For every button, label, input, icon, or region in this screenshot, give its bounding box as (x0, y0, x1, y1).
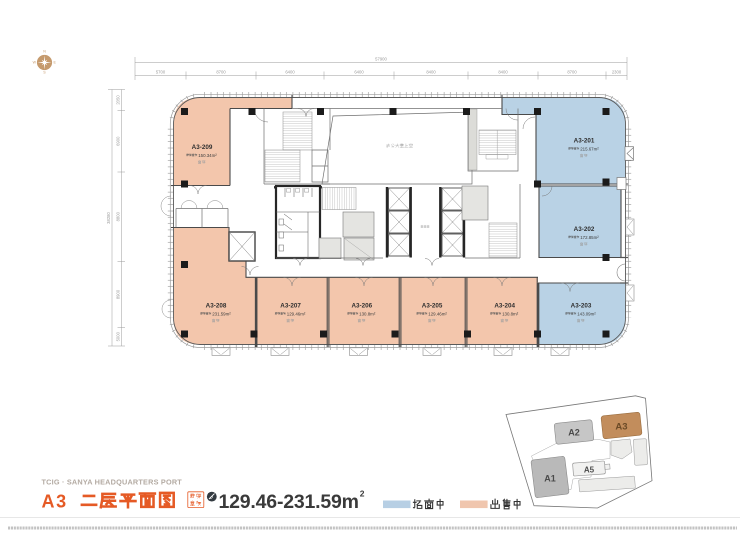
svg-text:A2: A2 (568, 428, 580, 438)
svg-text:A5: A5 (584, 466, 595, 475)
svg-text:S: S (43, 71, 46, 75)
svg-text:38280: 38280 (106, 212, 111, 224)
svg-text:A3-201: A3-201 (574, 137, 595, 144)
svg-text:A3-208: A3-208 (206, 302, 227, 309)
svg-text:W: W (33, 61, 37, 65)
svg-text:A3-207: A3-207 (280, 302, 301, 309)
svg-text:8700: 8700 (216, 70, 226, 75)
svg-text:8400: 8400 (498, 70, 508, 75)
svg-text:129.46m²: 129.46m² (287, 312, 306, 317)
svg-text:E: E (53, 61, 56, 65)
svg-text:231.59m²: 231.59m² (212, 312, 231, 317)
svg-text:TCIG · SANYA HEADQUARTERS PORT: TCIG · SANYA HEADQUARTERS PORT (42, 478, 183, 487)
svg-text:A3-203: A3-203 (571, 302, 592, 309)
svg-text:2300: 2300 (612, 70, 622, 75)
svg-text:150.34m²: 150.34m² (198, 153, 217, 158)
svg-text:A3: A3 (42, 492, 68, 512)
svg-text:A3-206: A3-206 (351, 302, 372, 309)
svg-text:8400: 8400 (426, 70, 436, 75)
svg-text:A3-205: A3-205 (422, 302, 443, 309)
svg-text:A3-202: A3-202 (574, 226, 595, 233)
svg-text:130.8m²: 130.8m² (359, 312, 376, 317)
svg-text:A3: A3 (615, 422, 627, 433)
svg-text:8800: 8800 (116, 211, 121, 221)
svg-text:6400: 6400 (354, 70, 364, 75)
svg-text:5700: 5700 (156, 70, 166, 75)
svg-text:172.85m²: 172.85m² (580, 235, 599, 240)
svg-text:129.46m²: 129.46m² (428, 312, 447, 317)
svg-text:130.8m²: 130.8m² (502, 312, 519, 317)
svg-text:129.46-231.59m: 129.46-231.59m (219, 491, 359, 513)
svg-text:8700: 8700 (567, 70, 577, 75)
svg-text:A3-204: A3-204 (494, 302, 515, 309)
svg-text:N: N (43, 50, 46, 54)
svg-text:2050: 2050 (116, 95, 121, 105)
svg-text:215.67m²: 215.67m² (580, 147, 599, 152)
svg-text:A3-209: A3-209 (192, 144, 213, 151)
svg-text:57900: 57900 (375, 57, 387, 62)
svg-text:2: 2 (360, 489, 365, 499)
svg-text:143.09m²: 143.09m² (577, 312, 596, 317)
svg-text:5000: 5000 (116, 331, 121, 341)
svg-text:6400: 6400 (285, 70, 295, 75)
svg-text:8900: 8900 (116, 289, 121, 299)
svg-text:A1: A1 (544, 474, 556, 484)
svg-text:6900: 6900 (116, 136, 121, 146)
